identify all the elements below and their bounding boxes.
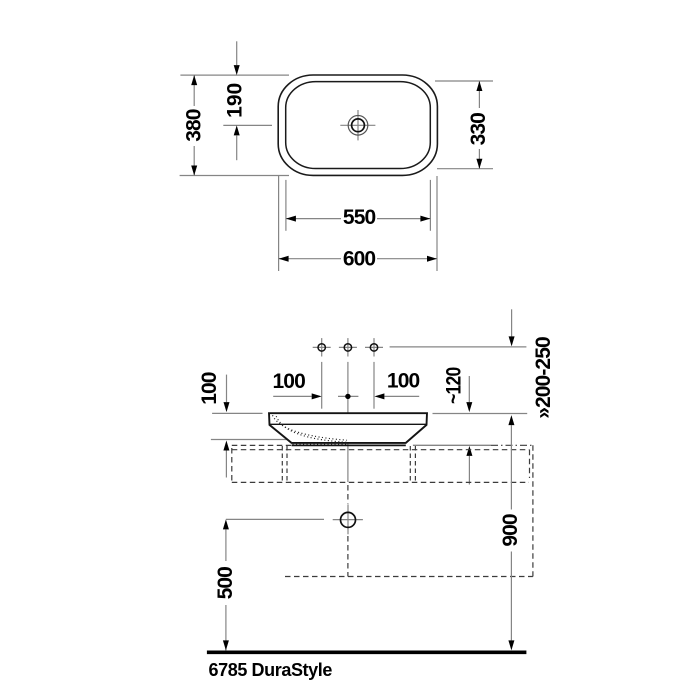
svg-text:550: 550 — [343, 206, 376, 229]
svg-text:100: 100 — [387, 370, 420, 393]
svg-text:500: 500 — [214, 567, 237, 600]
svg-text:600: 600 — [343, 248, 376, 271]
svg-text:190: 190 — [223, 83, 246, 118]
svg-text:~120: ~120 — [442, 367, 465, 404]
svg-text:380: 380 — [183, 109, 206, 142]
svg-text:»200-250: »200-250 — [532, 337, 555, 419]
svg-text:900: 900 — [499, 514, 522, 547]
svg-text:330: 330 — [467, 113, 490, 146]
svg-text:100: 100 — [198, 372, 221, 405]
svg-text:100: 100 — [273, 370, 306, 393]
svg-text:6785 DuraStyle: 6785 DuraStyle — [209, 660, 333, 680]
